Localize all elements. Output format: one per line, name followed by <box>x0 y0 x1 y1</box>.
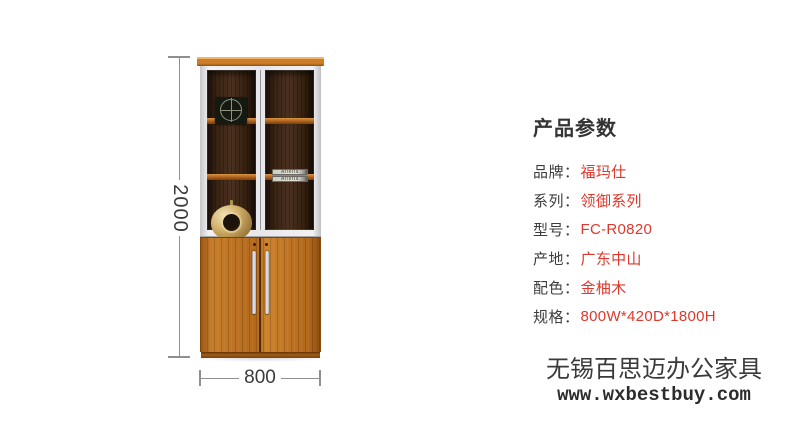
clock-dial-icon <box>220 99 242 121</box>
width-dimension-tick-right <box>319 370 321 386</box>
spec-value: 福玛仕 <box>581 161 627 182</box>
book-spine: Arietta <box>272 169 308 175</box>
apple-hole <box>223 214 240 231</box>
books-decor: Arietta Arietta <box>272 169 308 183</box>
door-seam <box>259 238 261 353</box>
product-specs-panel: 产品参数 品牌： 福玛仕 系列： 领御系列 型号： FC-R0820 产地： 广… <box>533 112 716 331</box>
cabinet-plinth <box>201 352 320 358</box>
cabinet-lower-doors <box>200 237 321 352</box>
glass-door-right <box>265 70 314 230</box>
clock-decor <box>215 97 247 124</box>
watermark-website: www.wxbestbuy.com <box>538 384 770 406</box>
spec-row-model: 型号： FC-R0820 <box>533 215 716 244</box>
spec-row-series: 系列： 领御系列 <box>533 186 716 215</box>
spec-row-color: 配色： 金柚木 <box>533 273 716 302</box>
door-handle <box>265 251 269 314</box>
spec-value: 800W*420D*1800H <box>581 308 716 325</box>
page: Arietta Arietta 2 <box>0 0 801 426</box>
watermark: 无锡百思迈办公家具 www.wxbestbuy.com <box>538 349 770 406</box>
keyhole-icon <box>265 243 268 246</box>
door-handle <box>252 251 256 314</box>
height-dimension-tick-bottom <box>168 356 190 358</box>
spec-label: 品牌： <box>533 161 580 182</box>
shelf <box>207 174 256 180</box>
watermark-company-name: 无锡百思迈办公家具 <box>538 349 770 384</box>
cabinet-upper-section: Arietta Arietta <box>200 66 321 237</box>
cabinet-image: Arietta Arietta <box>200 57 321 358</box>
specs-rows: 品牌： 福玛仕 系列： 领御系列 型号： FC-R0820 产地： 广东中山 配… <box>533 157 716 331</box>
spec-label: 系列： <box>533 190 580 211</box>
spec-label: 配色： <box>533 277 580 298</box>
spec-row-origin: 产地： 广东中山 <box>533 244 716 273</box>
spec-value: 广东中山 <box>581 248 642 269</box>
spec-row-brand: 品牌： 福玛仕 <box>533 157 716 186</box>
height-dimension-label: 2000 <box>163 180 195 236</box>
spec-label: 型号： <box>533 219 580 240</box>
specs-title: 产品参数 <box>533 112 716 141</box>
spec-row-size: 规格： 800W*420D*1800H <box>533 302 716 331</box>
width-dimension-tick-left <box>199 370 201 386</box>
width-dimension-label: 800 <box>239 367 281 389</box>
shelf <box>265 118 314 124</box>
apple-ornament-decor <box>211 201 252 240</box>
spec-value: 金柚木 <box>581 277 627 298</box>
spec-value: FC-R0820 <box>581 221 653 238</box>
height-dimension-tick-top <box>168 56 190 58</box>
book-spine: Arietta <box>272 176 308 182</box>
spec-label: 产地： <box>533 248 580 269</box>
cabinet-top-board <box>197 57 324 66</box>
keyhole-icon <box>253 243 256 246</box>
spec-value: 领御系列 <box>581 190 642 211</box>
spec-label: 规格： <box>533 306 580 327</box>
door-seam <box>260 70 261 230</box>
